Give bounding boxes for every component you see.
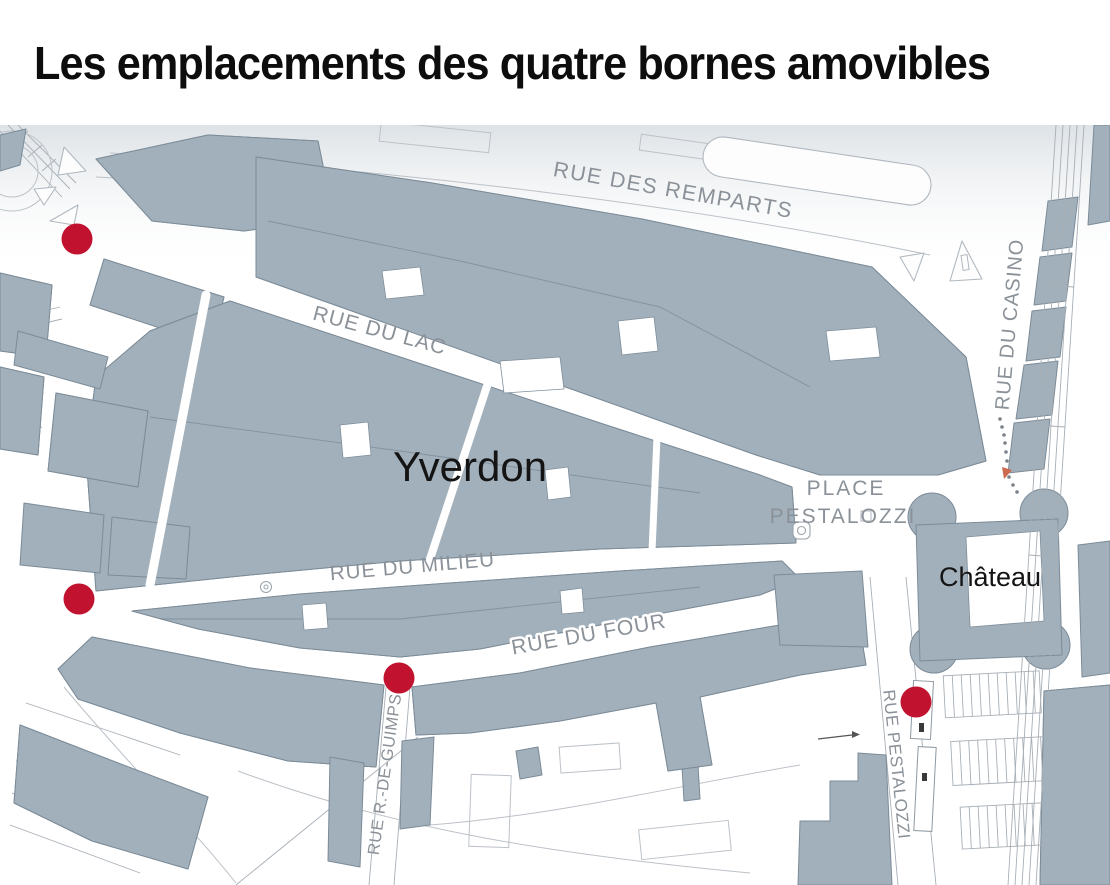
place-pestalozzi-label-line1: PLACE	[807, 477, 886, 500]
bollard-marker-3	[384, 663, 415, 694]
bollard-marker-1	[62, 224, 93, 255]
infographic-title: Les emplacements des quatre bornes amovi…	[34, 36, 990, 90]
city-label: Yverdon	[393, 443, 547, 490]
city-map: RUE DES REMPARTS RUE DU LAC RUE DU MILIE…	[0, 125, 1110, 885]
bollard-marker-4	[901, 687, 932, 718]
bollard-marker-2	[64, 584, 95, 615]
chateau-label: Château	[939, 562, 1041, 592]
infographic: Les emplacements des quatre bornes amovi…	[0, 0, 1110, 885]
place-pestalozzi-label-line2: PESTALOZZI	[770, 505, 917, 528]
